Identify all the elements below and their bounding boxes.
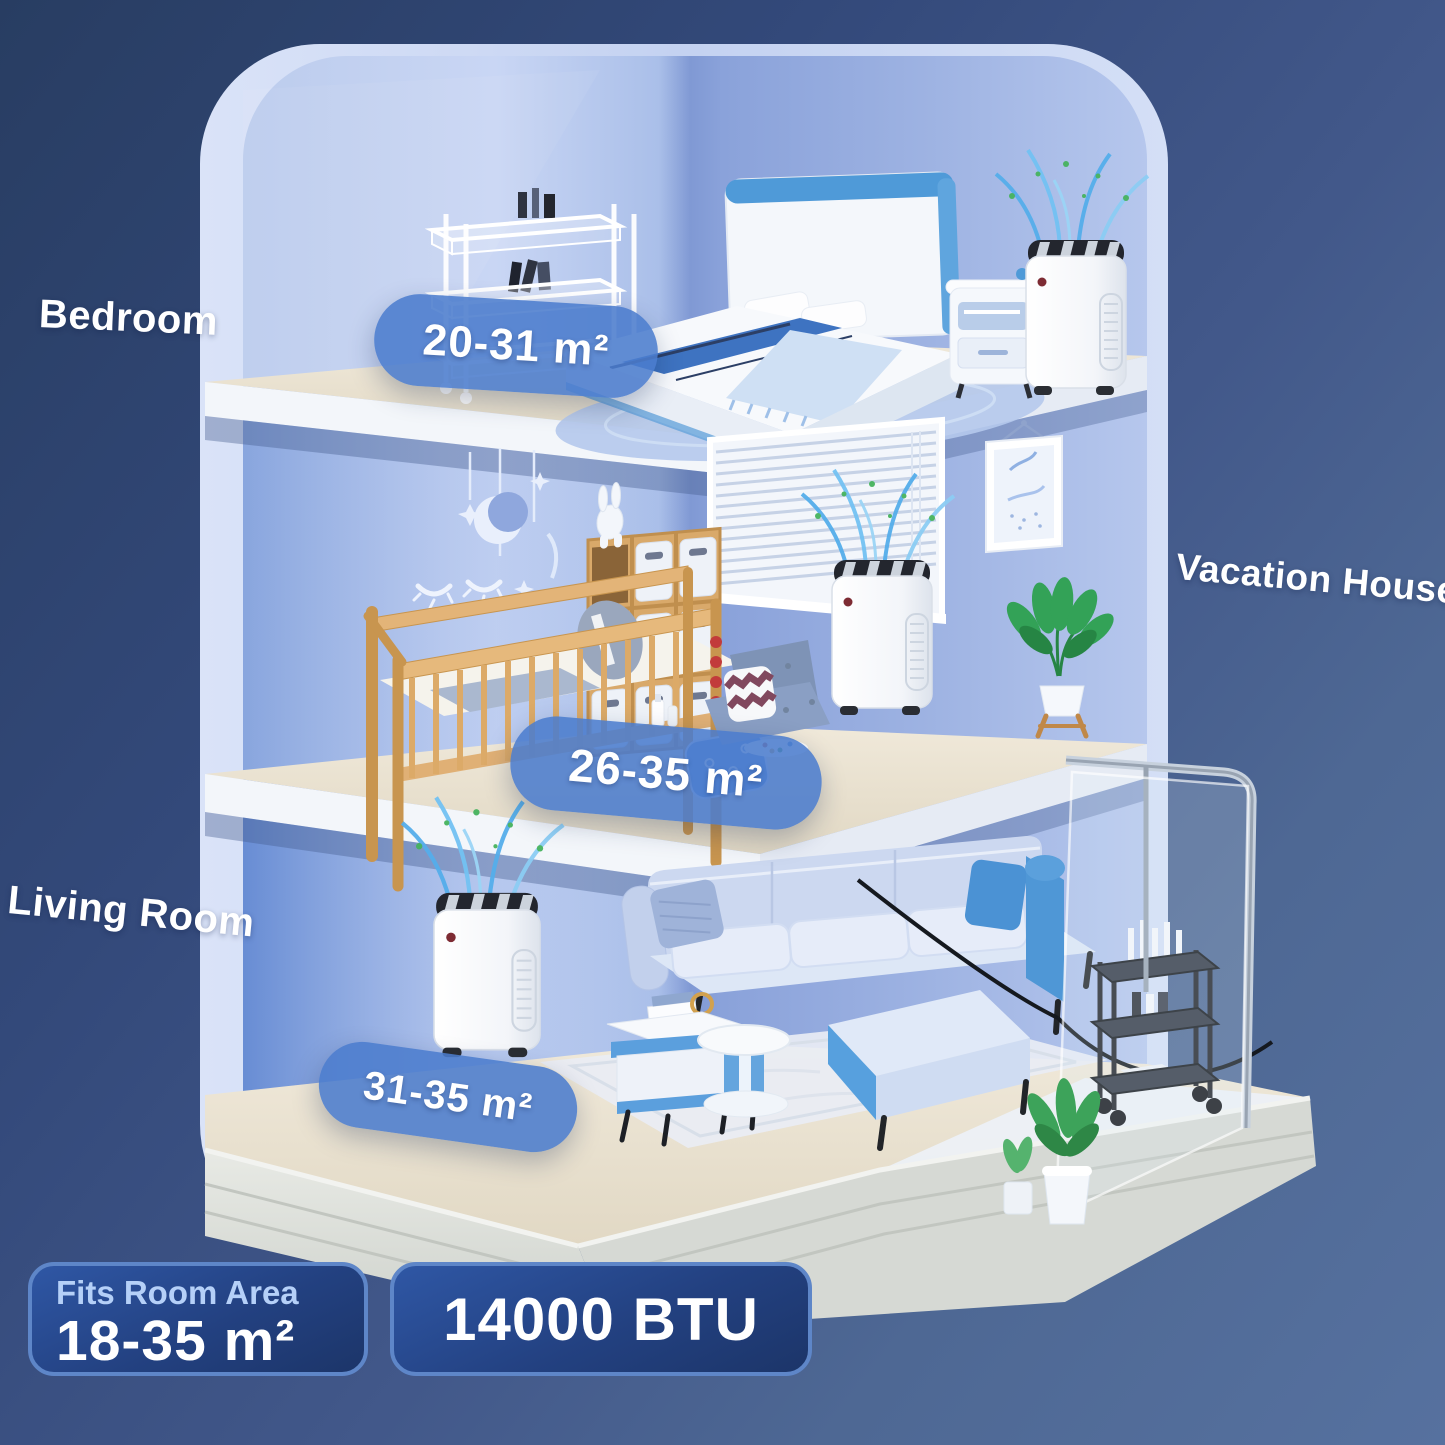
fits-room-area-value: 18-35 m² (56, 1312, 364, 1372)
fits-room-area-label: Fits Room Area (56, 1274, 364, 1312)
room-label-bedroom: Bedroom (38, 292, 219, 345)
fits-room-area-badge: Fits Room Area 18-35 m² (28, 1262, 368, 1376)
air-conditioner-room-coverage-infographic: Bedroom Vacation House Living Room 20-31… (0, 0, 1445, 1445)
btu-badge: 14000 BTU (390, 1262, 812, 1376)
btu-value: 14000 BTU (443, 1288, 759, 1351)
house-cutaway-illustration (0, 0, 1445, 1445)
chevron-pillow (723, 665, 778, 723)
area-badge-bedroom: 20-31 m² (371, 291, 660, 400)
